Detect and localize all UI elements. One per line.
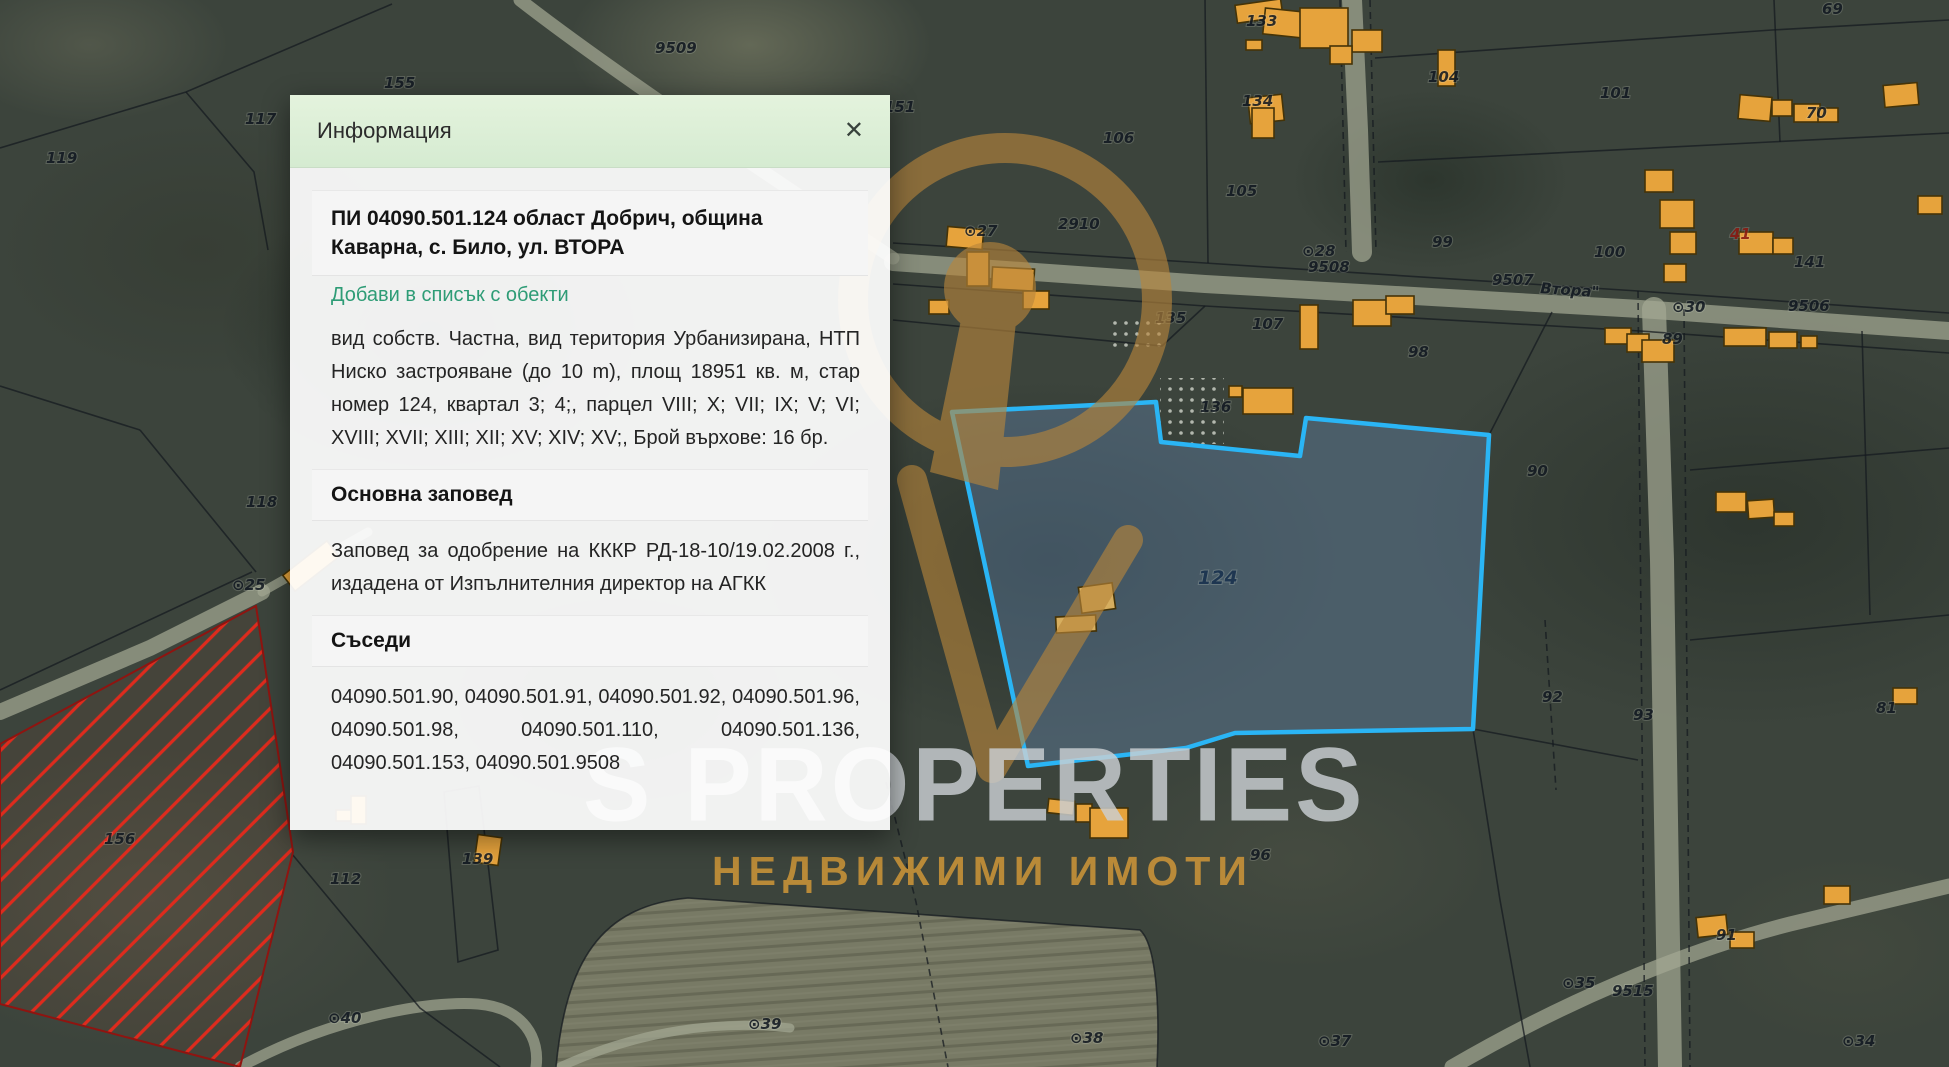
parcel-label: 9509 [655, 39, 697, 57]
parcel-boundary [1489, 312, 1552, 435]
parcel-label: 99 [1432, 233, 1453, 251]
parcel-label: 91 [1716, 926, 1737, 944]
building [1773, 238, 1793, 254]
parcel-title: ПИ 04090.501.124 област Добрич, община К… [312, 190, 868, 276]
parcel-label: 90 [1527, 462, 1548, 480]
building [1747, 499, 1774, 519]
parcel-label: 98 [1408, 343, 1429, 361]
parcel-label: 100 [1594, 243, 1625, 261]
building [1883, 83, 1919, 108]
road [1654, 309, 1670, 1067]
parcel-label: ⊙34 [1842, 1032, 1875, 1050]
parcel-boundary [1473, 729, 1530, 1067]
parcel-label: ⊙39 [748, 1015, 781, 1033]
parcel-label: 101 [1600, 84, 1631, 102]
parcel-label: 112 [330, 870, 361, 888]
building [1386, 296, 1414, 314]
add-to-list-link[interactable]: Добави в списък с обекти [331, 284, 569, 307]
building [1670, 232, 1696, 254]
building [1801, 336, 1817, 348]
dialog-header: Информация ✕ [290, 95, 890, 168]
building [1352, 30, 1382, 52]
parcel-label: ⊙27 [964, 222, 998, 240]
parcel-label: 70 [1806, 104, 1827, 122]
restricted-parcel-hatched[interactable] [0, 606, 293, 1067]
building [1246, 40, 1262, 50]
parcel-label: 117 [245, 110, 277, 128]
building [1774, 512, 1794, 526]
parcel-label: 2910 [1058, 215, 1100, 233]
parcel-boundary [1690, 615, 1949, 640]
road [240, 1003, 537, 1067]
building [1724, 328, 1766, 346]
neighbors-section-header: Съседи [312, 615, 868, 667]
parcel-boundary [1473, 729, 1638, 760]
building [1023, 291, 1049, 309]
parcel-label: 41 [1729, 225, 1751, 243]
building [1664, 264, 1686, 282]
building [1769, 332, 1797, 348]
order-section-header: Основна заповед [312, 469, 868, 521]
building [1047, 799, 1074, 816]
parcel-label: 141 [1794, 253, 1825, 271]
dialog-body: ПИ 04090.501.124 област Добрич, община К… [290, 168, 890, 830]
building [1824, 886, 1850, 904]
parcel-label: ⊙30 [1672, 298, 1705, 316]
parcel-boundary [0, 386, 140, 430]
building [1660, 200, 1694, 228]
parcel-label: 105 [1226, 182, 1257, 200]
parcel-boundary [1375, 20, 1949, 58]
plowed-field [556, 898, 1158, 1067]
parcel-label: 104 [1428, 68, 1459, 86]
parcel-label: 69 [1822, 0, 1843, 18]
building [1090, 808, 1128, 838]
parcel-label: 9507 [1492, 271, 1534, 289]
parcel-label: 9515 [1612, 982, 1654, 1000]
parcel-boundary [140, 430, 256, 572]
building [1738, 95, 1772, 122]
parcel-label: 107 [1252, 315, 1284, 333]
building [1056, 615, 1097, 633]
parcel-label: 96 [1250, 846, 1271, 864]
building [967, 252, 989, 286]
building [991, 267, 1034, 291]
parcel-details: вид собств. Частна, вид територия Урбани… [331, 323, 860, 455]
parcel-label: 156 [104, 830, 135, 848]
building [1243, 388, 1293, 414]
parcel-boundary [1690, 448, 1949, 470]
parcel-label: 155 [384, 74, 415, 92]
building [1252, 108, 1274, 138]
parcel-label: 9506 [1788, 297, 1830, 315]
parcel-label: ⊙25 [232, 576, 265, 594]
parcel-label: 81 [1876, 699, 1897, 717]
order-text: Заповед за одобрение на КККР РД-18-10/19… [331, 535, 860, 601]
parcel-label: 139 [462, 850, 493, 868]
parcel-boundary [1378, 133, 1949, 162]
building [1300, 305, 1318, 349]
building [1229, 386, 1242, 397]
building [1772, 100, 1792, 116]
parcel-label: 89 [1662, 330, 1683, 348]
parcel-label: 136 [1200, 398, 1231, 416]
parcel-label: ⊙37 [1318, 1032, 1352, 1050]
building [1716, 492, 1746, 512]
parcel-label: 135 [1155, 309, 1186, 327]
parcel-label: 118 [246, 493, 277, 511]
parcel-boundary [1638, 291, 1645, 1067]
parcel-label: 106 [1103, 129, 1134, 147]
parcel-label: 133 [1246, 12, 1277, 30]
neighbors-list: 04090.501.90, 04090.501.91, 04090.501.92… [331, 681, 860, 780]
parcel-label: ⊙40 [328, 1009, 361, 1027]
parcel-label: 124 [1198, 567, 1238, 589]
close-icon[interactable]: ✕ [840, 115, 868, 147]
building [929, 300, 949, 314]
building [1645, 170, 1673, 192]
building [1918, 196, 1942, 214]
parcel-boundary [1774, 0, 1780, 142]
parcel-boundary [1862, 331, 1870, 615]
parcel-label: 9508 [1308, 258, 1350, 276]
parcel-label: ⊙38 [1070, 1029, 1103, 1047]
dialog-title: Информация [317, 118, 452, 144]
building [1300, 8, 1348, 48]
parcel-label: 134 [1242, 92, 1273, 110]
parcel-label: 92 [1542, 688, 1563, 706]
parcel-label: 119 [46, 149, 77, 167]
parcel-boundary [1205, 0, 1208, 263]
building [1078, 583, 1115, 613]
map-viewer: 1171191559509118156112139⊙25⊙40⊙39⊙38⊙37… [0, 0, 1949, 1067]
parcel-label: ⊙35 [1562, 974, 1595, 992]
parcel-label: 93 [1633, 706, 1654, 724]
info-dialog: Информация ✕ ПИ 04090.501.124 област Доб… [290, 95, 890, 830]
building [1330, 46, 1352, 64]
